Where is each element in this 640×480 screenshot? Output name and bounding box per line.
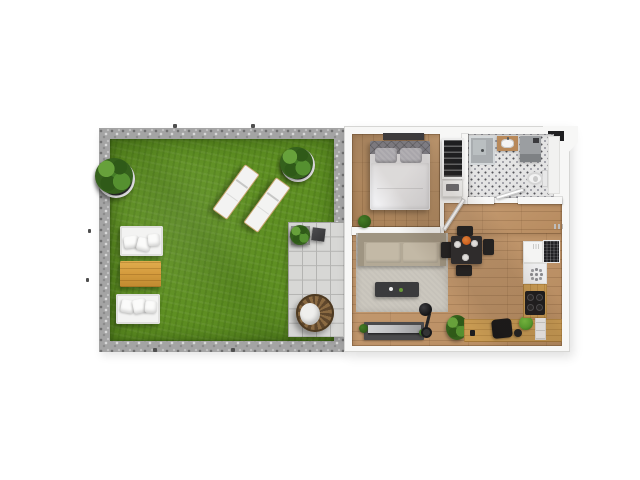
counter-plant xyxy=(519,316,533,330)
floor-plan-render xyxy=(0,0,640,480)
office-chair xyxy=(491,318,513,339)
burner xyxy=(527,304,534,311)
potted-plant xyxy=(95,158,133,194)
burner xyxy=(536,304,543,311)
double-bed xyxy=(370,141,430,210)
right-wall-window xyxy=(554,224,563,229)
dining-chair xyxy=(456,265,472,276)
outdoor-coffee-table xyxy=(120,261,161,287)
bed-duvet xyxy=(371,163,429,209)
table-decor xyxy=(399,288,403,292)
toilet xyxy=(527,172,543,185)
outdoor-sofa xyxy=(120,226,163,256)
tv xyxy=(368,325,421,334)
stool xyxy=(514,329,522,337)
dresser xyxy=(442,180,463,197)
wall-bathroom-hall-right xyxy=(518,197,562,204)
wall-bathroom-hall-left xyxy=(468,197,494,204)
wardrobe xyxy=(442,138,464,179)
plate xyxy=(454,241,461,248)
bed-pillow xyxy=(375,148,397,163)
burner xyxy=(527,294,534,301)
patio-shrub xyxy=(290,225,310,245)
cooktop xyxy=(525,291,545,315)
bottle-rack xyxy=(543,240,560,263)
fence-post xyxy=(231,348,235,352)
fence-post xyxy=(88,229,91,233)
cushion xyxy=(145,301,158,314)
bathroom-cabinet xyxy=(548,136,560,194)
fridge xyxy=(523,241,543,263)
cushion xyxy=(147,233,160,246)
sink-unit xyxy=(523,263,547,284)
fence-post xyxy=(173,124,177,128)
dining-chair xyxy=(457,226,473,236)
flower-bowl xyxy=(462,236,471,245)
bedroom-wall-shelf xyxy=(383,133,424,140)
sofa xyxy=(358,233,446,266)
tv-plant xyxy=(359,324,368,333)
sofa-arm xyxy=(358,233,364,266)
dining-chair xyxy=(483,239,494,255)
hanging-egg-chair xyxy=(296,294,334,332)
bedroom-plant xyxy=(358,215,371,228)
sofa-cushion xyxy=(366,243,401,263)
table-decor xyxy=(389,287,393,291)
drawer-unit xyxy=(535,316,546,340)
shower xyxy=(469,136,495,165)
floor-lamp-base xyxy=(421,327,432,338)
desk xyxy=(464,319,562,342)
sofa-cushion xyxy=(403,243,438,263)
bed-pillow xyxy=(400,148,422,163)
outdoor-sofa xyxy=(116,294,160,324)
fence-post xyxy=(86,278,89,282)
potted-plant xyxy=(280,147,313,179)
desk-item xyxy=(470,330,475,336)
washing-machine xyxy=(520,136,541,162)
garden-edge-strip xyxy=(60,127,102,353)
sink-drain xyxy=(535,273,538,276)
burner xyxy=(536,294,543,301)
patio-cube-table xyxy=(311,227,325,241)
fence-post xyxy=(153,348,157,352)
plate xyxy=(462,254,469,261)
fence-post xyxy=(251,124,255,128)
sofa-back xyxy=(358,233,446,242)
floor-lamp-head xyxy=(419,303,432,316)
coffee-table xyxy=(375,282,419,297)
plate xyxy=(471,240,478,247)
dining-table xyxy=(451,236,482,264)
sink-vanity xyxy=(497,136,518,151)
